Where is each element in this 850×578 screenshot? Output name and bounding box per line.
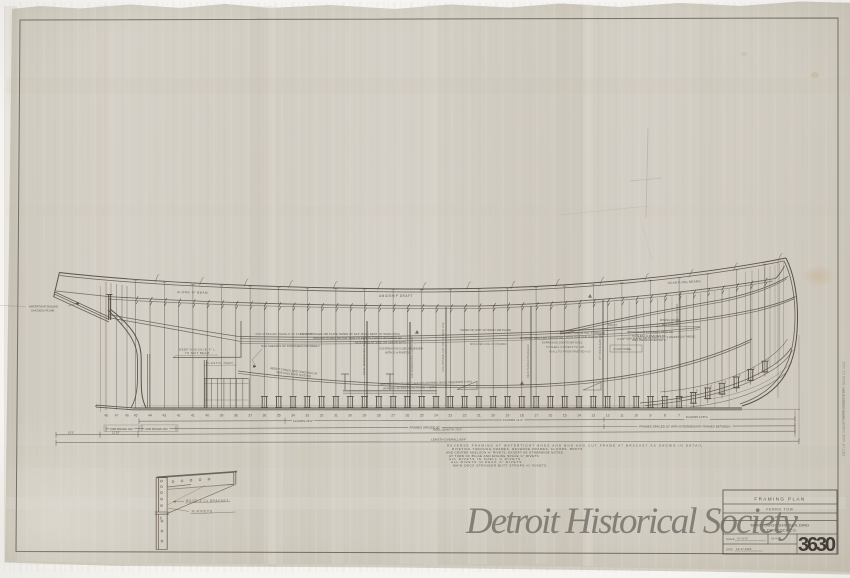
svg-text:22: 22 — [463, 414, 467, 418]
svg-text:12: 12 — [606, 414, 610, 418]
svg-text:MOULDED LINE OF FRAMES: MOULDED LINE OF FRAMES — [470, 342, 507, 346]
svg-text:35: 35 — [277, 414, 281, 418]
svg-text:FRM SPACED 16⅔″: FRM SPACED 16⅔″ — [146, 428, 169, 431]
svg-text:24: 24 — [434, 414, 438, 418]
svg-text:SPACED TO GET NO 5 AT SIDE TO: SPACED TO GET NO 5 AT SIDE TO RIVETS THI… — [313, 336, 402, 340]
svg-text:ALONG ⅜″ BEAM: ALONG ⅜″ BEAM — [177, 290, 208, 295]
svg-text:KEEL LENGTH 72′0″: KEEL LENGTH 72′0″ — [433, 427, 463, 431]
svg-text:8: 8 — [664, 414, 666, 418]
svg-text:11: 11 — [620, 414, 624, 418]
svg-text:FRAMES SPACED 20″ WITH INTERME: FRAMES SPACED 20″ WITH INTERMEDIATE FRAM… — [639, 425, 730, 429]
svg-text:45: 45 — [134, 414, 138, 418]
svg-text:33: 33 — [305, 414, 309, 418]
svg-text:15′1″: 15′1″ — [68, 431, 74, 435]
svg-text:LENGTH OVERALL 80′4″: LENGTH OVERALL 80′4″ — [431, 437, 467, 441]
svg-text:TO SHELL ⅝ RIVETS TO LAP: TO SHELL ⅝ RIVETS TO LAP — [546, 345, 584, 349]
svg-text:39: 39 — [220, 414, 224, 418]
svg-text:27: 27 — [391, 414, 395, 418]
svg-text:NECESSARY: NECESSARY — [662, 323, 680, 327]
svg-text:DATE: DATE — [726, 547, 733, 551]
svg-text:43: 43 — [162, 414, 166, 418]
svg-text:FLOORS 14⅞″: FLOORS 14⅞″ — [503, 418, 523, 422]
svg-text:RIVETED THIS CLIP CHOCK OF: RIVETED THIS CLIP CHOCK OF — [520, 336, 563, 340]
svg-text:37: 37 — [248, 414, 252, 418]
svg-text:16: 16 — [549, 414, 553, 418]
svg-text:47: 47 — [115, 414, 119, 418]
svg-text:48: 48 — [104, 414, 108, 418]
svg-text:32: 32 — [320, 414, 324, 418]
svg-text:18: 18 — [520, 414, 524, 418]
svg-text:38: 38 — [234, 414, 238, 418]
svg-text:25: 25 — [420, 414, 424, 418]
svg-text:41: 41 — [191, 414, 195, 418]
svg-text:9: 9 — [650, 414, 652, 418]
svg-text:OAK DECK PLANK: OAK DECK PLANK — [31, 309, 55, 313]
svg-text:15: 15 — [563, 414, 567, 418]
svg-text:3630: 3630 — [798, 534, 836, 556]
svg-text:19: 19 — [506, 414, 510, 418]
svg-text:10: 10 — [634, 414, 638, 418]
svg-text:Detroit Historical Society: Detroit Historical Society — [465, 501, 799, 542]
svg-text:RISING WOOD: RISING WOOD — [660, 318, 680, 322]
svg-text:40: 40 — [205, 414, 209, 418]
svg-text:13: 13 — [591, 414, 595, 418]
svg-text:12-17-1918: 12-17-1918 — [736, 547, 752, 551]
svg-text:AMIDSHIP DRAFT: AMIDSHIP DRAFT — [379, 294, 413, 298]
svg-text:EXPANSION JOINTS WITH ALL: EXPANSION JOINTS WITH ALL — [542, 341, 583, 345]
svg-text:26: 26 — [406, 414, 410, 418]
svg-text:36: 36 — [263, 414, 267, 418]
svg-text:44: 44 — [148, 414, 152, 418]
svg-text:OAK SHELVES OF STRINGERS PROPE: OAK SHELVES OF STRINGERS PROPERLY — [261, 344, 320, 348]
svg-text:4 CAST KNEE: 4 CAST KNEE — [613, 347, 631, 351]
svg-text:DRAFT: DRAFT — [608, 323, 618, 327]
svg-text:42: 42 — [177, 414, 181, 418]
svg-text:20: 20 — [491, 414, 495, 418]
svg-text:12′10″: 12′10″ — [112, 430, 120, 434]
svg-text:FLOORS 12′8″¾: FLOORS 12′8″¾ — [686, 415, 709, 419]
svg-text:CAL BUNKER BULKHD TO SUIT: CAL BUNKER BULKHD TO SUIT — [410, 336, 414, 378]
svg-text:14: 14 — [577, 414, 581, 418]
svg-text:21: 21 — [477, 414, 481, 418]
svg-text:30: 30 — [348, 414, 352, 418]
svg-text:MOST RAIL AT SIDE OR SHEER BAT: MOST RAIL AT SIDE OR SHEER BATS — [355, 341, 406, 345]
svg-text:FLOORS 15⅝″: FLOORS 15⅝″ — [293, 419, 313, 423]
svg-text:46: 46 — [125, 414, 129, 418]
svg-text:31: 31 — [334, 414, 338, 418]
svg-text:23: 23 — [448, 414, 452, 418]
svg-text:COLL BUNKER AND SUIT OF DECK L: COLL BUNKER AND SUIT OF DECK LINE — [441, 322, 445, 372]
svg-text:ELASTIC PART: ELASTIC PART — [206, 361, 234, 365]
svg-text:WITH 2 ⅝ RIVETS: WITH 2 ⅝ RIVETS — [385, 351, 409, 355]
svg-text:TAPER OF 3/16″ 10″ BAND 15# PL: TAPER OF 3/16″ 10″ BAND 15# PLATE — [460, 328, 511, 332]
svg-text:DECK BUNKER BULKHEAD: DECK BUNKER BULKHEAD — [526, 344, 530, 378]
svg-text:MAIN DECK STRINGER BUTT STRAPS: MAIN DECK STRINGER BUTT STRAPS ⅝″ RIVETS — [453, 463, 547, 467]
svg-text:IN ALL TO 4 ROW RIVETED ⅝ D: IN ALL TO 4 ROW RIVETED ⅝ D — [549, 350, 591, 354]
svg-text:17: 17 — [534, 414, 538, 418]
svg-text:7: 7 — [678, 414, 680, 418]
svg-text:JOIN STRINGER THERE IS OF 3/16: JOIN STRINGER THERE IS OF 3/16 RIVETS — [255, 332, 312, 336]
svg-text:WATERTIGHT BULKHD: WATERTIGHT BULKHD — [29, 305, 58, 309]
svg-text:28: 28 — [377, 414, 381, 418]
svg-text:34: 34 — [291, 414, 295, 418]
svg-text:GIFT OF MANITOWOC SHIPBUILDING: GIFT OF MANITOWOC SHIPBUILDING & DRY DOC… — [842, 362, 846, 456]
svg-text:29: 29 — [363, 414, 367, 418]
svg-text:TO SUIT BEAM: TO SUIT BEAM — [185, 351, 210, 355]
svg-text:WITH THIS CLIP CHOCK OF: WITH THIS CLIP CHOCK OF — [566, 335, 603, 339]
